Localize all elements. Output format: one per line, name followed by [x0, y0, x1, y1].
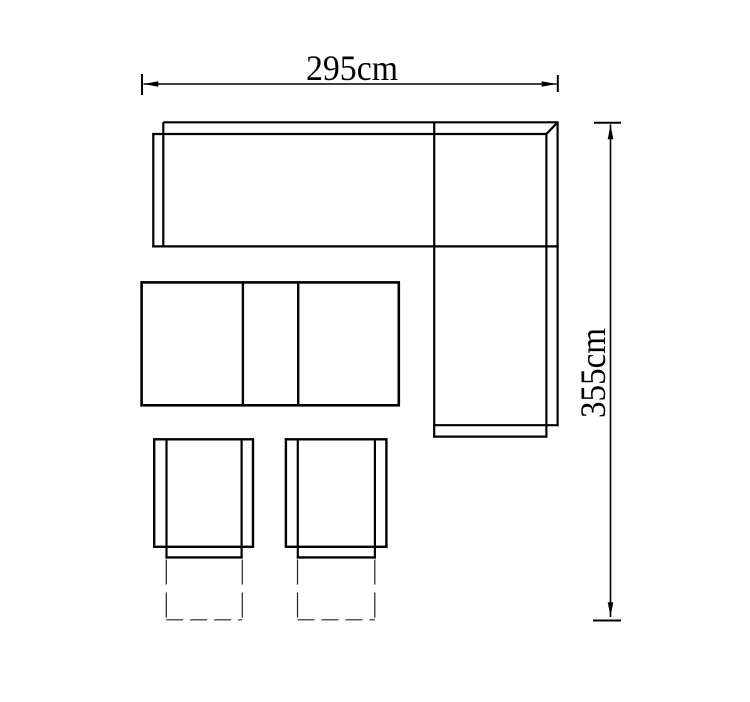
svg-text:295cm: 295cm	[306, 48, 398, 88]
svg-text:355cm: 355cm	[573, 328, 613, 418]
